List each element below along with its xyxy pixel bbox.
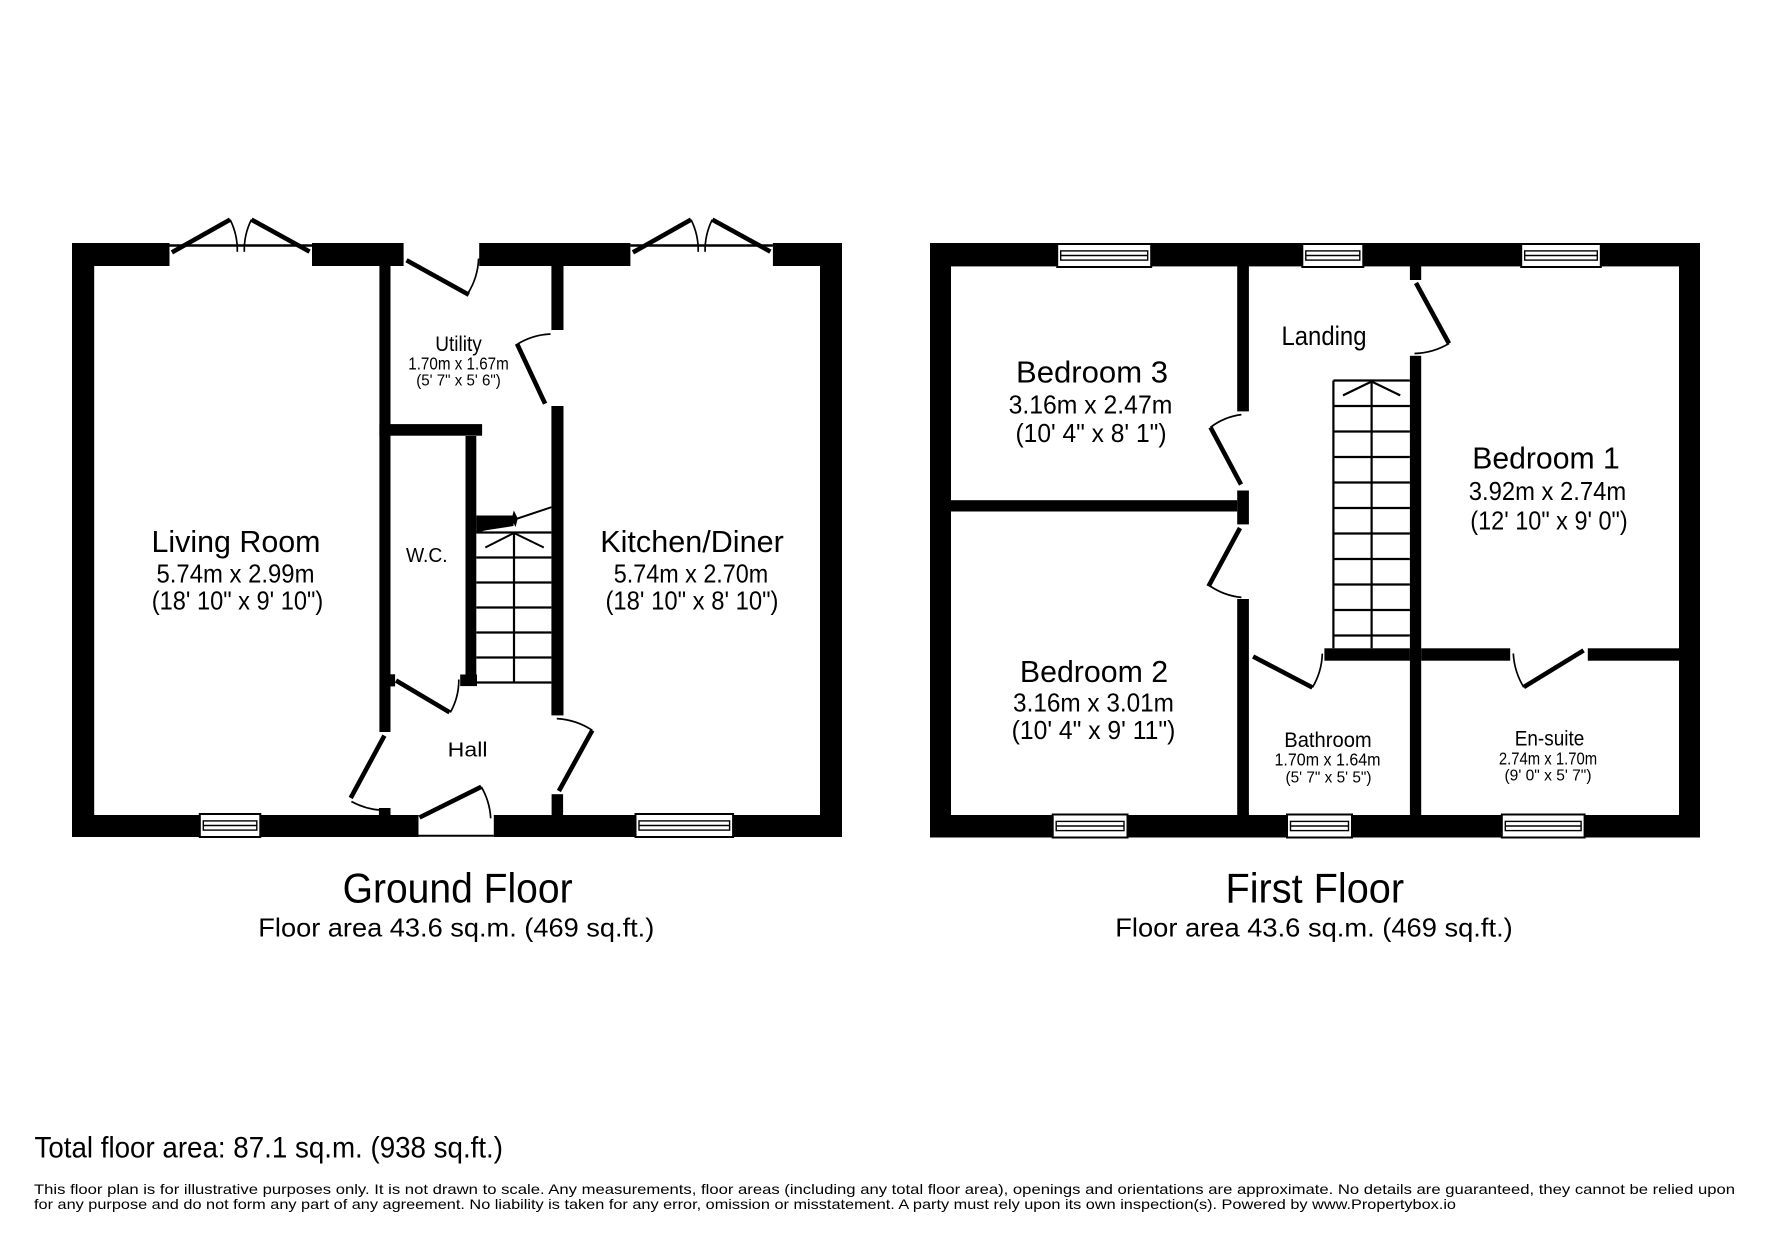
svg-text:Ground Floor: Ground Floor	[343, 865, 573, 912]
svg-text:3.16m x 2.47m: 3.16m x 2.47m	[1009, 389, 1173, 419]
svg-text:Hall: Hall	[448, 738, 488, 761]
svg-text:Kitchen/Diner: Kitchen/Diner	[600, 524, 784, 559]
svg-text:Floor area 43.6 sq.m. (469 sq.: Floor area 43.6 sq.m. (469 sq.ft.)	[258, 913, 654, 943]
svg-text:Bedroom 3: Bedroom 3	[1016, 355, 1168, 390]
svg-text:(5' 7" x 5' 5"): (5' 7" x 5' 5")	[1286, 770, 1372, 787]
svg-text:(9' 0" x 5' 7"): (9' 0" x 5' 7")	[1505, 768, 1592, 785]
svg-text:First Floor: First Floor	[1226, 865, 1405, 912]
svg-text:Floor area 43.6 sq.m. (469 sq.: Floor area 43.6 sq.m. (469 sq.ft.)	[1115, 913, 1513, 943]
svg-text:Total floor area: 87.1 sq.m. (: Total floor area: 87.1 sq.m. (938 sq.ft.…	[35, 1132, 504, 1165]
svg-text:5.74m x 2.99m: 5.74m x 2.99m	[157, 558, 315, 588]
svg-text:3.16m x 3.01m: 3.16m x 3.01m	[1013, 688, 1174, 718]
svg-text:En-suite: En-suite	[1515, 728, 1585, 751]
svg-text:1.70m x 1.64m: 1.70m x 1.64m	[1275, 750, 1381, 770]
svg-text:W.C.: W.C.	[406, 545, 448, 567]
svg-text:for any purpose and do not for: for any purpose and do not form any part…	[34, 1196, 1456, 1212]
svg-text:Living Room: Living Room	[152, 524, 321, 559]
svg-text:1.70m x 1.67m: 1.70m x 1.67m	[408, 354, 509, 374]
svg-text:(18' 10" x 9' 10"): (18' 10" x 9' 10")	[152, 585, 324, 615]
svg-text:Bedroom 2: Bedroom 2	[1020, 654, 1168, 689]
svg-text:(5' 7" x 5' 6"): (5' 7" x 5' 6")	[416, 373, 501, 390]
svg-text:Landing: Landing	[1282, 321, 1367, 351]
svg-text:This floor plan is for illustr: This floor plan is for illustrative purp…	[34, 1181, 1735, 1197]
svg-text:2.74m x 1.70m: 2.74m x 1.70m	[1499, 749, 1597, 769]
svg-text:3.92m x 2.74m: 3.92m x 2.74m	[1469, 476, 1626, 506]
svg-text:(10' 4" x 8' 1"): (10' 4" x 8' 1")	[1016, 418, 1167, 448]
svg-text:(12' 10" x 9' 0"): (12' 10" x 9' 0")	[1470, 505, 1627, 535]
svg-text:5.74m x 2.70m: 5.74m x 2.70m	[614, 558, 769, 588]
svg-text:Bedroom 1: Bedroom 1	[1472, 441, 1620, 476]
svg-text:(10' 4" x 9' 11"): (10' 4" x 9' 11")	[1012, 715, 1176, 745]
svg-text:(18' 10" x 8' 10"): (18' 10" x 8' 10")	[606, 585, 779, 615]
